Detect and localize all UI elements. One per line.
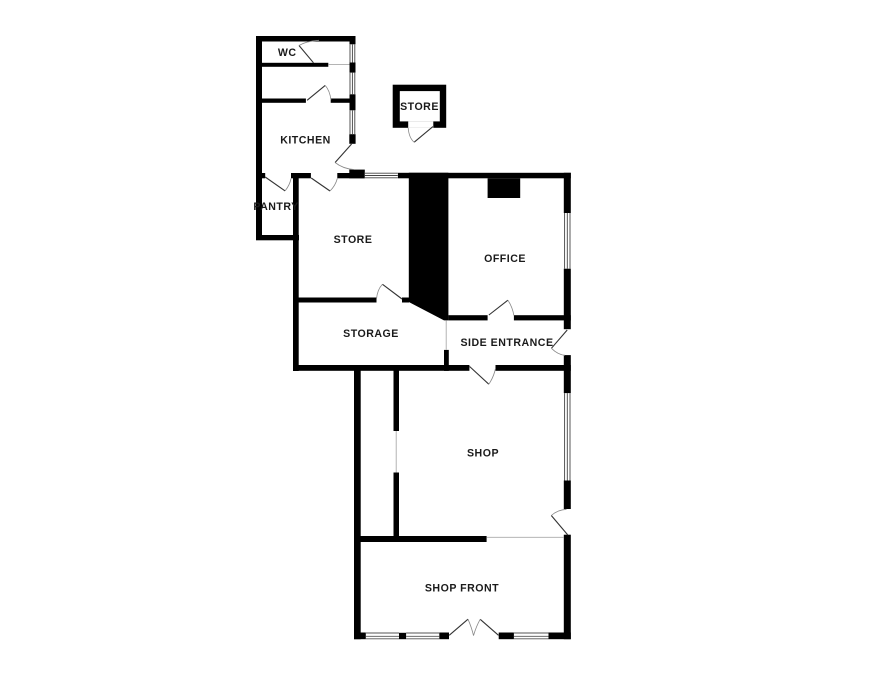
svg-text:OFFICE: OFFICE — [484, 253, 526, 265]
svg-text:PANTRY: PANTRY — [253, 201, 298, 213]
svg-text:KITCHEN: KITCHEN — [280, 135, 331, 147]
svg-text:WC: WC — [278, 47, 297, 59]
svg-text:STORE: STORE — [334, 234, 373, 246]
svg-text:SIDE ENTRANCE: SIDE ENTRANCE — [460, 337, 553, 349]
svg-text:SHOP FRONT: SHOP FRONT — [425, 582, 499, 594]
svg-text:STORE: STORE — [400, 101, 439, 113]
svg-text:SHOP: SHOP — [467, 448, 499, 460]
svg-text:STORAGE: STORAGE — [343, 328, 399, 340]
